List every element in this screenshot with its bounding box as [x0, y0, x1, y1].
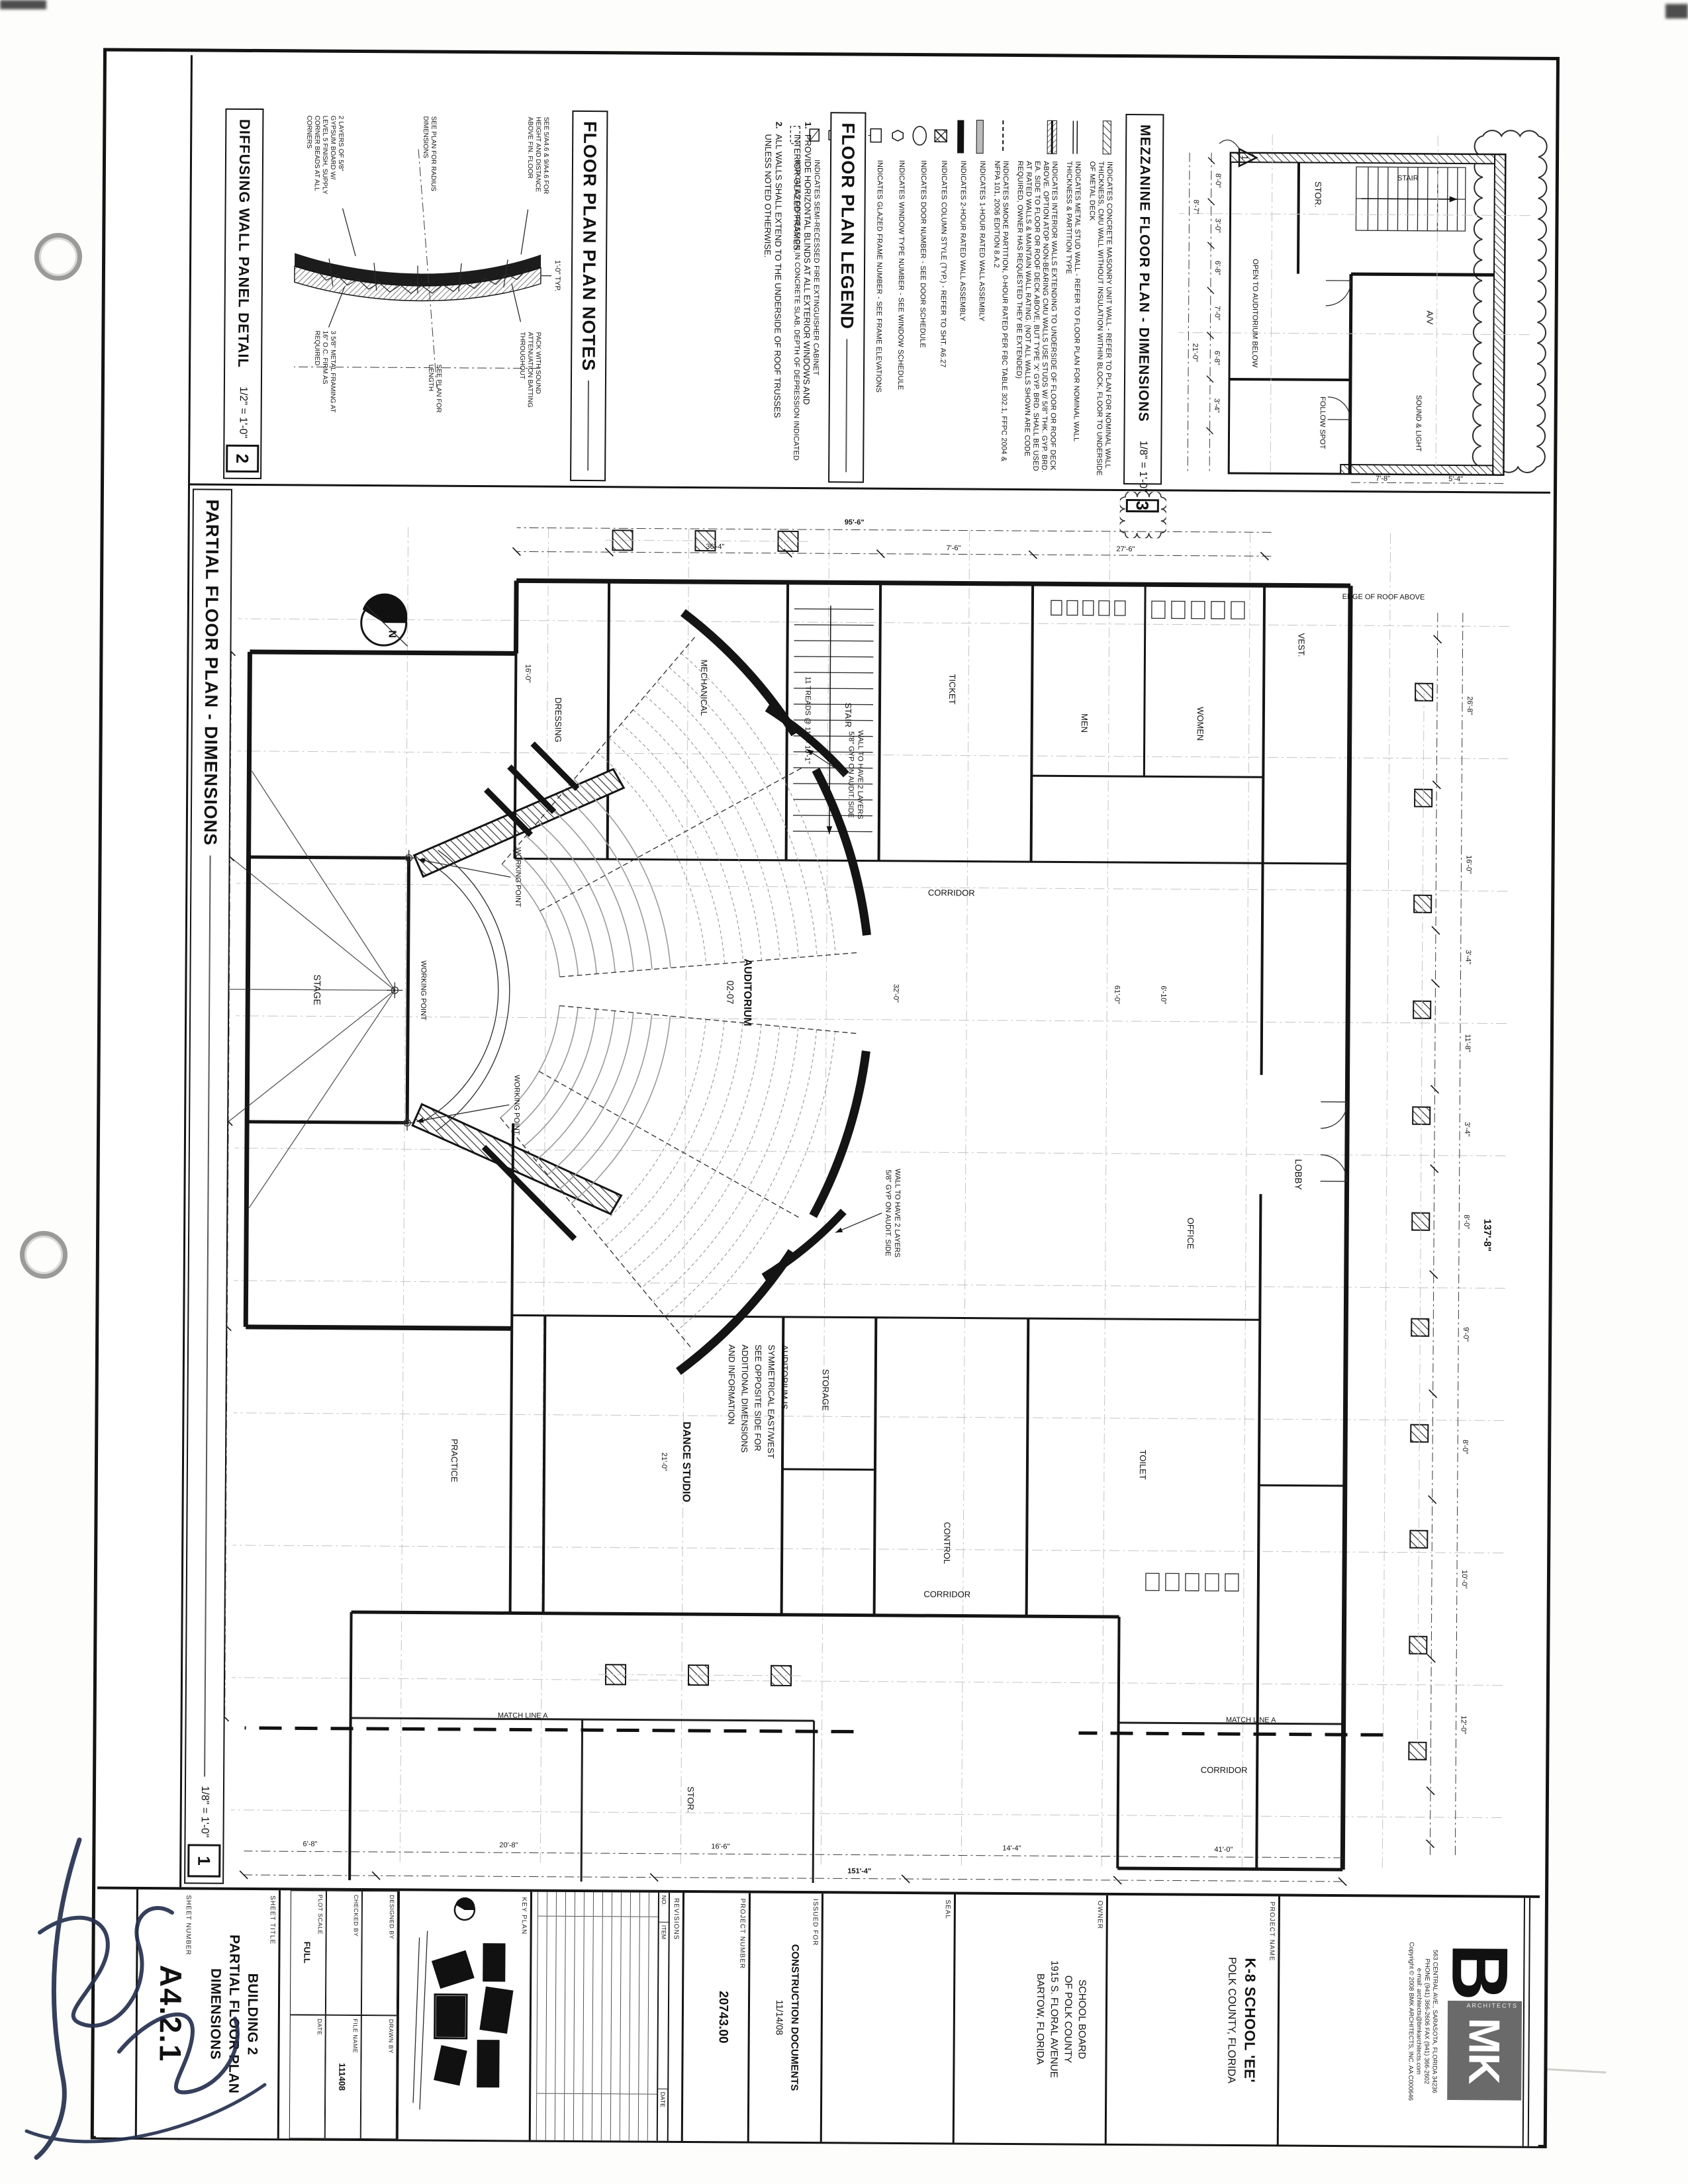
scanned-drawing-page: STOR. A/V FOLLOW SPOT SOUND & LIGHT STAI…: [0, 0, 1688, 2184]
svg-text:WALL TO HAVE 2 LAYERS: WALL TO HAVE 2 LAYERS: [893, 1169, 902, 1257]
svg-text:SYMMETRICAL EAST/WEST: SYMMETRICAL EAST/WEST: [766, 1345, 776, 1459]
colonnade-columns: [605, 530, 1433, 1760]
revisions-label: REVISIONS: [671, 1893, 682, 2141]
dim: 8'-7": [1192, 200, 1200, 214]
note-number: 2.: [763, 122, 784, 129]
svg-text:95'-6": 95'-6": [845, 518, 865, 526]
project-location: POLK COUNTY, FLORIDA: [1225, 1896, 1238, 2144]
project-name-block: PROJECT NAME K-8 SCHOOL 'EE' POLK COUNTY…: [1105, 1895, 1278, 2145]
svg-text:WORKING POINT: WORKING POINT: [512, 1075, 521, 1135]
svg-text:WORKING POINT: WORKING POINT: [514, 847, 522, 907]
legend-text: INDICATES INTERIOR WALLS EXTENDING TO UN…: [1013, 161, 1058, 480]
mezzanine-scale: 1/8" = 1'-0": [1137, 441, 1149, 492]
revisions-header: NO. ITEM DATE: [657, 1893, 670, 2141]
svg-text:20'-8": 20'-8": [499, 1841, 518, 1849]
svg-text:PRACTICE: PRACTICE: [449, 1439, 459, 1482]
dim: 7'-0": [1213, 306, 1221, 320]
owner-label: OWNER: [1095, 1895, 1106, 2144]
file-name-label: FILE NAME: [350, 2015, 361, 2138]
svg-text:STOR.: STOR.: [686, 1786, 696, 1813]
glazed-frame-symbol: [868, 119, 884, 154]
svg-text:41'-0": 41'-0": [1214, 1846, 1233, 1854]
logo-letter-b: B: [1448, 1943, 1512, 1998]
legend-text: INDICATES 2-HOUR RATED WALL ASSEMBLY: [958, 160, 967, 321]
svg-text:STORAGE: STORAGE: [820, 1369, 830, 1412]
owner-line: BARTOW, FLORIDA: [1033, 1895, 1048, 2143]
svg-text:CORRIDOR: CORRIDOR: [928, 887, 975, 897]
svg-text:STAIR: STAIR: [843, 703, 853, 727]
legend-text: INDICATES GLAZED FRAME NUMBER - SEE FRAM…: [874, 160, 884, 393]
svg-text:12'-0": 12'-0": [1460, 1715, 1468, 1734]
project-number-label: PROJECT NUMBER: [737, 1893, 749, 2141]
one-hour-wall-symbol: [973, 120, 986, 154]
scan-smudge: [0, 0, 46, 9]
svg-text:6'-8": 6'-8": [303, 1840, 317, 1848]
svg-text:16'-0": 16'-0": [524, 664, 532, 682]
key-plan-graphic: [408, 1891, 520, 2140]
svg-text:1: 1: [1240, 155, 1250, 159]
metal-stud-wall-symbol: [1068, 120, 1082, 154]
svg-text:151'-4": 151'-4": [847, 1867, 871, 1875]
revisions-rows: [536, 1892, 658, 2141]
detail-annotation: PACK WITH SOUND ATTENUATION BATTING THRO…: [518, 332, 542, 418]
mezz-room-label: A/V: [1425, 310, 1435, 324]
rev-col-date: DATE: [658, 2089, 667, 2141]
svg-text:61'-0": 61'-0": [1113, 985, 1121, 1004]
mezzanine-floor-plan: STOR. A/V FOLLOW SPOT SOUND & LIGHT STAI…: [1166, 114, 1550, 487]
note-text: PROVIDE HORIZONTAL BLINDS AT ALL EXTERIO…: [790, 134, 813, 445]
logo-letters-mk: MK: [1459, 2018, 1510, 2083]
dim: 6'-8": [1213, 261, 1221, 275]
note-text: ALL WALLS SHALL EXTEND TO THE UNDERSIDE …: [761, 134, 784, 445]
svg-text:DANCE STUDIO: DANCE STUDIO: [680, 1422, 692, 1502]
legend-text: INDICATES CONCRETE MASONRY UNIT WALL - R…: [1086, 161, 1113, 481]
svg-text:8'-0": 8'-0": [1461, 1439, 1469, 1454]
svg-text:MATCH LINE A: MATCH LINE A: [1226, 1716, 1276, 1724]
svg-text:WORKING POINT: WORKING POINT: [419, 960, 428, 1021]
notes-title-bar: FLOOR PLAN PLAN NOTES: [570, 111, 608, 481]
svg-text:8'-0": 8'-0": [1462, 1214, 1470, 1229]
title-rule: [587, 381, 589, 471]
mezz-room-label: SOUND & LIGHT: [1414, 395, 1423, 452]
svg-text:27'-6": 27'-6": [1116, 545, 1135, 553]
svg-text:CONTROL: CONTROL: [942, 1522, 952, 1565]
legend-text: INDICATES WINDOW TYPE NUMBER - SEE WINDO…: [896, 160, 906, 390]
seal-block: SEAL: [820, 1893, 954, 2142]
column-symbol: [933, 119, 948, 154]
owner-line: 1915 S. FLORAL AVENUE: [1047, 1895, 1062, 2143]
project-name: K-8 SCHOOL 'EE': [1241, 1896, 1259, 2144]
key-plan-block: KEY PLAN: [397, 1891, 530, 2140]
owner-line: OF POLK COUNTY: [1060, 1895, 1076, 2143]
dim: 6'-8": [1213, 351, 1221, 365]
svg-text:9'-0": 9'-0": [1462, 1327, 1470, 1342]
svg-text:CORRIDOR: CORRIDOR: [923, 1589, 970, 1599]
dim: 21'-0": [1191, 343, 1199, 362]
svg-text:36'-4": 36'-4": [706, 543, 724, 551]
svg-text:AUDITORIUM: AUDITORIUM: [741, 959, 753, 1026]
cmu-wall-symbol: [1100, 120, 1113, 155]
mezzanine-title-bar: MEZZANINE FLOOR PLAN - DIMENSIONS 1/8" =…: [1123, 114, 1164, 484]
title-rule: [204, 855, 211, 1776]
svg-text:11 TREADS @ 11" = 10'-1": 11 TREADS @ 11" = 10'-1": [803, 676, 812, 764]
signoff-block: DESIGNED BY DRAWN BY CHECKED BY FILE NAM…: [277, 1890, 398, 2139]
drawn-by-label: DRAWN BY: [385, 2016, 397, 2139]
svg-text:14'-4": 14'-4": [1002, 1844, 1021, 1852]
exterior-walls: [242, 579, 1350, 1886]
mezzanine-title: MEZZANINE FLOOR PLAN - DIMENSIONS: [1135, 115, 1153, 422]
legend-text: INDICATES SMOKE PARTITION, 0-HOUR RATED …: [990, 161, 1009, 480]
issue-block: ISSUED FOR CONSTRUCTION DOCUMENTS 11/14/…: [747, 1893, 821, 2142]
detail-dim: 1'-0" TYP.: [553, 260, 561, 292]
detail-scale: 1/2" = 1'-0": [236, 387, 248, 438]
svg-text:LOBBY: LOBBY: [1293, 1159, 1304, 1190]
title-block: B ARCHITECTS MK 563 CENTRAL AVE., SARASO…: [96, 1887, 1540, 2146]
handwritten-signature: [0, 1800, 278, 2184]
svg-text:TICKET: TICKET: [947, 674, 957, 704]
svg-text:16'-0": 16'-0": [1464, 855, 1472, 874]
dim: 5'-4": [1448, 475, 1463, 483]
detail-annotation: 2 LAYERS OF 5/8" GYPSUM BOARD W/ LEVEL 5…: [305, 115, 345, 201]
detail-number-badge: 2: [226, 445, 259, 473]
dim: 3'-4": [1213, 398, 1221, 413]
rev-col-item: ITEM: [658, 1923, 669, 2089]
svg-text:WALL TO HAVE 2 LAYERS: WALL TO HAVE 2 LAYERS: [856, 730, 865, 819]
legend-text: INDICATES 1-HOUR RATED WALL ASSEMBLY: [977, 161, 986, 322]
svg-text:6'-10": 6'-10": [1159, 985, 1167, 1004]
drawing-sheet: STOR. A/V FOLLOW SPOT SOUND & LIGHT STAI…: [91, 48, 1560, 2148]
svg-text:7'-6": 7'-6": [946, 544, 961, 552]
checked-by-label: CHECKED BY: [350, 1891, 361, 2015]
svg-text:MEN: MEN: [1080, 713, 1090, 733]
issued-for-label: ISSUED FOR: [810, 1893, 821, 2142]
svg-text:26'-8": 26'-8": [1466, 696, 1474, 715]
binder-hole: [20, 1231, 68, 1279]
mezz-room-label: STAIR: [1397, 175, 1419, 183]
svg-text:MATCH LINE A: MATCH LINE A: [498, 1711, 548, 1719]
date-label: DATE: [314, 2015, 325, 2138]
svg-text:02-07: 02-07: [725, 980, 735, 1004]
owner-block: OWNER SCHOOL BOARD OF POLK COUNTY 1915 S…: [953, 1894, 1106, 2143]
svg-text:5/8" GYP ON AUDIT. SIDE: 5/8" GYP ON AUDIT. SIDE: [884, 1169, 892, 1256]
project-number-block: PROJECT NUMBER 20743.00: [681, 1893, 749, 2142]
rev-col-no: NO.: [659, 1893, 669, 1923]
svg-text:32'-0": 32'-0": [892, 984, 900, 1003]
dim: 3'-0": [1213, 218, 1221, 233]
adjacent-wing-rooms: [350, 1718, 1343, 1886]
legend-title-bar: FLOOR PLAN LEGEND: [828, 112, 866, 482]
stage: [224, 652, 578, 1329]
detail-title: DIFFUSING WALL PANEL DETAIL: [234, 110, 253, 368]
mezz-room-label: OPEN TO AUDITORIUM BELOW: [1250, 259, 1259, 367]
svg-text:DRESSING: DRESSING: [553, 698, 563, 743]
firm-address: 563 CENTRAL AVE., SARASOTA, FLORIDA 3423…: [1406, 1897, 1439, 2146]
door-number-symbol: [912, 119, 927, 154]
svg-text:3'-4": 3'-4": [1463, 1122, 1471, 1136]
project-name-label: PROJECT NAME: [1267, 1896, 1278, 2144]
svg-text:AUDITORIUM IS: AUDITORIUM IS: [779, 1345, 790, 1410]
svg-text:137'-8": 137'-8": [1481, 1219, 1493, 1251]
dimension-lines: [220, 526, 1463, 1886]
legend-title: FLOOR PLAN LEGEND: [837, 113, 859, 330]
plot-scale-label: PLOT SCALE: [314, 1891, 326, 2015]
svg-text:ADDITIONAL DIMENSIONS: ADDITIONAL DIMENSIONS: [739, 1344, 750, 1453]
detail-annotation: SEE PLAN FOR RADIUS DIMENSIONS: [421, 116, 438, 195]
lobby-walls: [1256, 585, 1350, 1870]
toilet-fixtures: [1051, 600, 1244, 619]
svg-text:STAGE: STAGE: [312, 974, 322, 1005]
detail-annotation: SEE PLAN FOR LENGTH: [426, 365, 442, 418]
scan-smudge: [1665, 4, 1688, 19]
svg-text:16'-6": 16'-6": [711, 1843, 729, 1850]
diffusing-wall-panel: [764, 1211, 844, 1278]
bmk-logo: B ARCHITECTS MK: [1447, 1897, 1523, 2146]
svg-text:10'-0": 10'-0": [1460, 1570, 1468, 1588]
key-plan-label: KEY PLAN: [519, 1891, 530, 2140]
svg-text:AND INFORMATION: AND INFORMATION: [726, 1344, 737, 1424]
plot-scale-value: FULL: [302, 1891, 312, 2014]
svg-text:TOILET: TOILET: [1138, 1450, 1148, 1480]
legend-text: INDICATES DOOR NUMBER - SEE DOOR SCHEDUL…: [917, 160, 927, 348]
file-name-value: 111408: [337, 2015, 348, 2138]
room-labels: AUDITORIUM 02-07 STAGE LOBBY VEST. WOMEN…: [307, 627, 1307, 1816]
auditorium-shell: [411, 611, 869, 1373]
notes-title: FLOOR PLAN PLAN NOTES: [579, 112, 600, 371]
svg-text:EDGE OF ROOF ABOVE: EDGE OF ROOF ABOVE: [1342, 593, 1425, 602]
svg-text:WOMEN: WOMEN: [1196, 707, 1205, 741]
revisions-block: REVISIONS NO. ITEM DATE: [529, 1892, 682, 2141]
detail-annotation: 3 5/8" METAL FRAMING AT 16" O.C. FIRM AS…: [312, 331, 337, 417]
svg-text:CORRIDOR: CORRIDOR: [1201, 1765, 1248, 1775]
plan-notes: AUDITORIUM IS SYMMETRICAL EAST/WEST SEE …: [413, 587, 1425, 1725]
logo-box: ARCHITECTS MK: [1447, 2001, 1522, 2101]
binder-hole: [34, 233, 82, 281]
designed-by-label: DESIGNED BY: [386, 1891, 397, 2015]
svg-text:3'-4": 3'-4": [1464, 950, 1472, 964]
owner-line: SCHOOL BOARD: [1074, 1895, 1090, 2144]
detail-annotation: SEE 5/A4.6 & 9/A4.6 FOR HEIGHT AND DISTA…: [526, 116, 550, 203]
dim: 7'-8": [1376, 475, 1390, 482]
dim: 8'-0": [1214, 173, 1222, 188]
detail-number: 2: [232, 454, 253, 464]
toilet-fixtures: [1146, 1573, 1239, 1591]
firm-block: B ARCHITECTS MK 563 CENTRAL AVE., SARASO…: [1277, 1896, 1540, 2146]
mezz-room-label: STOR.: [1313, 181, 1323, 208]
svg-text:21'-0": 21'-0": [660, 1453, 668, 1471]
svg-text:11'-8": 11'-8": [1464, 1034, 1472, 1052]
two-hour-wall-symbol: [954, 119, 967, 154]
svg-text:SEE OPPOSITE SIDE FOR: SEE OPPOSITE SIDE FOR: [753, 1345, 763, 1451]
floor-plan-notes-items: 1.PROVIDE HORIZONTAL BLINDS AT ALL EXTER…: [753, 122, 813, 473]
issue-date: 11/14/08: [774, 1893, 786, 2142]
column-grid: [230, 526, 1509, 1871]
logo-architects-text: ARCHITECTS: [1466, 2002, 1518, 2009]
plan-title: PARTIAL FLOOR PLAN - DIMENSIONS: [200, 490, 222, 846]
svg-text:VEST.: VEST.: [1296, 633, 1306, 657]
mezz-room-label: FOLLOW SPOT: [1318, 396, 1326, 449]
svg-text:MECHANICAL: MECHANICAL: [699, 659, 710, 715]
svg-text:OFFICE: OFFICE: [1186, 1218, 1196, 1250]
project-number: 20743.00: [715, 1893, 731, 2141]
seal-label: SEAL: [943, 1894, 954, 2142]
full-height-wall-symbol: [1045, 120, 1058, 154]
partial-floor-plan: N AUDITORIUM 02-07 STAGE LOBBY VEST. WOM…: [184, 486, 1550, 1893]
title-rule: [845, 339, 847, 473]
north-label: N: [387, 630, 398, 638]
smoke-partition-symbol: [996, 120, 1009, 154]
issue-name: CONSTRUCTION DOCUMENTS: [788, 1893, 801, 2142]
legend-text: INDICATES COLUMN STYLE (TYP.) - REFER TO…: [938, 160, 948, 367]
window-type-symbol: [890, 119, 906, 154]
note-number: 1.: [792, 122, 813, 129]
svg-text:5/8" GYP ON AUDIT. SIDE: 5/8" GYP ON AUDIT. SIDE: [847, 731, 855, 818]
left-wing-rooms: [515, 580, 1265, 863]
detail-title-bar: DIFFUSING WALL PANEL DETAIL 1/2" = 1'-0"…: [223, 109, 263, 479]
legend-text: INDICATES METAL STUD WALL - REFER TO FLO…: [1062, 161, 1082, 480]
